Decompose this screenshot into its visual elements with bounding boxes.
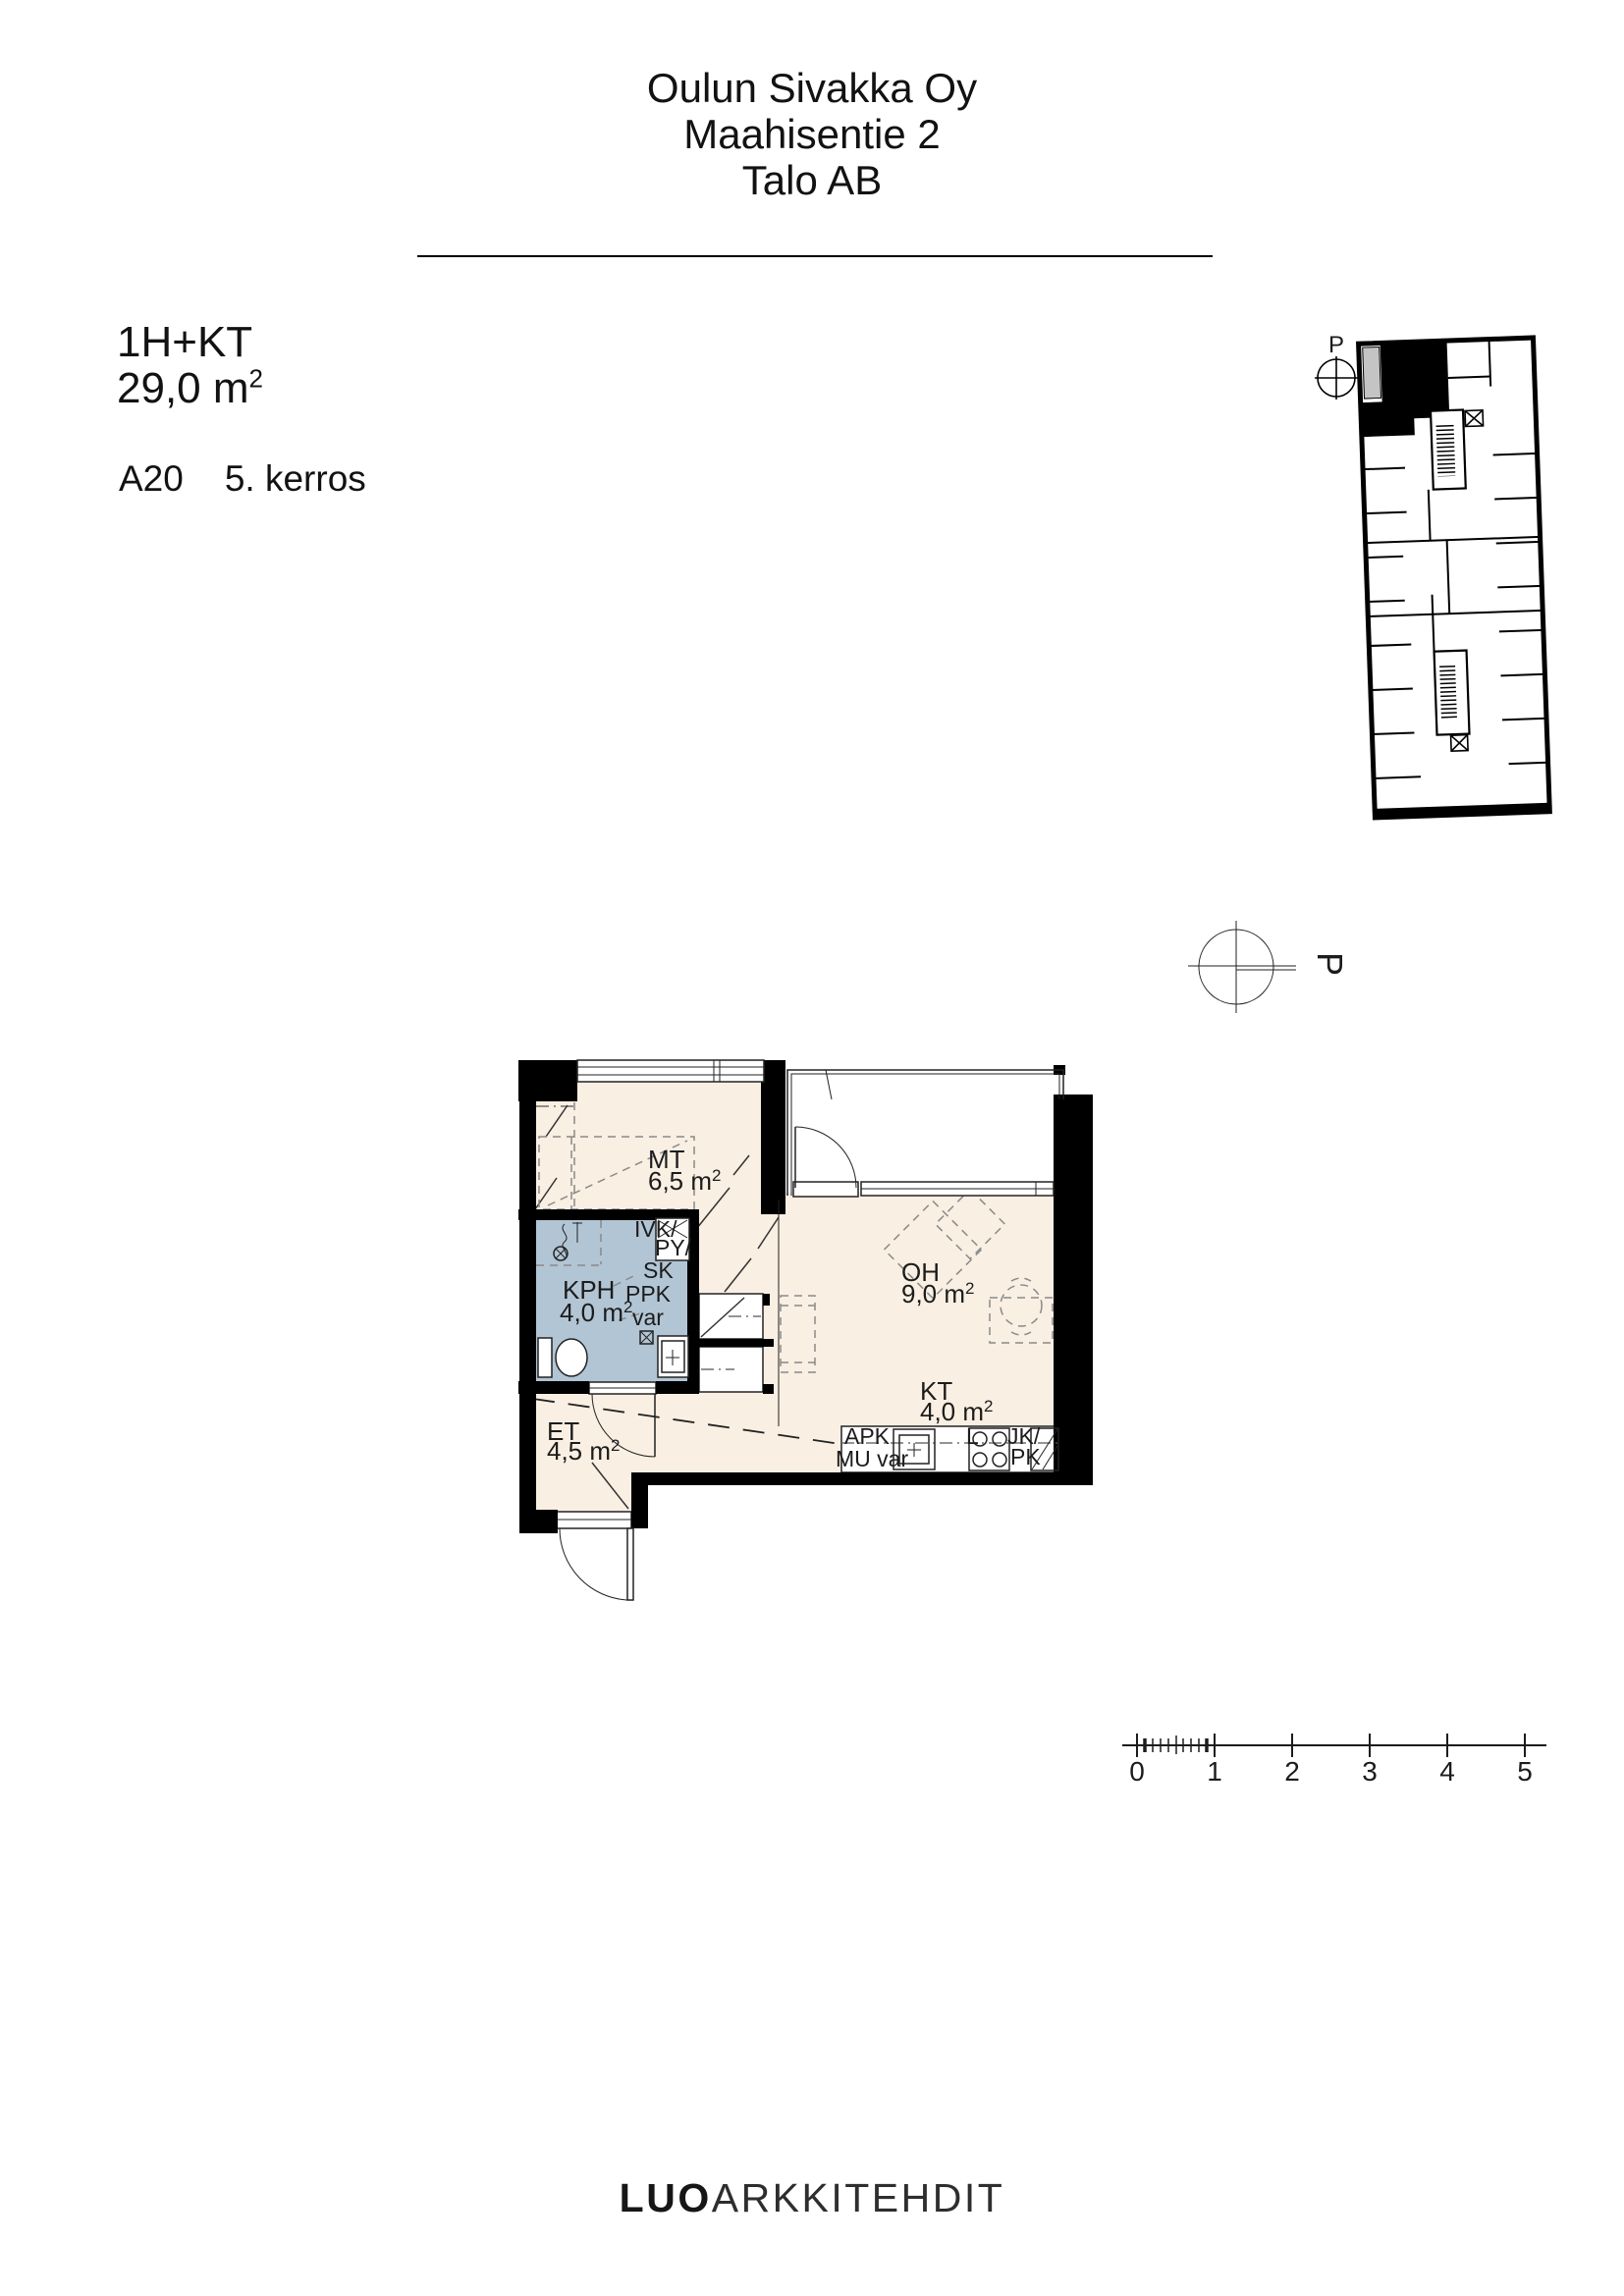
svg-text:5: 5 xyxy=(1517,1756,1533,1787)
room-et-area: 4,5 m2 xyxy=(547,1436,621,1466)
square-sup: 2 xyxy=(249,363,263,393)
document-header: Oulun Sivakka Oy Maahisentie 2 Talo AB xyxy=(0,65,1624,203)
balcony-door-swing xyxy=(795,1127,856,1188)
room-kph-area: 4,0 m2 xyxy=(560,1298,633,1327)
scale-bar: 0 1 2 3 4 5 xyxy=(1100,1718,1561,1796)
key-plan-building xyxy=(1359,338,1550,818)
north-compass-icon: P xyxy=(1178,903,1355,1031)
room-oh-area: 9,0 m2 xyxy=(901,1279,975,1308)
street-address: Maahisentie 2 xyxy=(0,111,1624,157)
scale-numbers: 0 1 2 3 4 5 xyxy=(1129,1756,1533,1787)
toilet xyxy=(538,1338,552,1377)
room-mt-area: 6,5 m2 xyxy=(648,1166,722,1196)
apartment-balcony xyxy=(1363,347,1381,399)
floor-number: 5. kerros xyxy=(225,458,366,499)
label-var: var xyxy=(632,1305,664,1330)
svg-text:2: 2 xyxy=(1284,1756,1300,1787)
label-mu-var: MU var xyxy=(836,1446,908,1471)
header-divider xyxy=(417,255,1213,257)
north-label: P xyxy=(1310,952,1350,976)
label-ppk: PPK xyxy=(625,1281,672,1307)
apartment-area: 29,0 m2 xyxy=(117,364,263,413)
apartment-unit-floor: A205. kerros xyxy=(119,458,366,500)
apartment-floor-plan: MT 6,5 m2 KPH 4,0 m2 OH 9,0 m2 KT 4,0 m2… xyxy=(491,1031,1119,1620)
architect-logo: LUOARKKITEHDIT xyxy=(0,2175,1624,2221)
unit-id: A20 xyxy=(119,458,184,499)
entrance-door xyxy=(627,1528,633,1600)
label-pk: PK xyxy=(1010,1444,1041,1469)
logo-bold: LUO xyxy=(620,2175,712,2220)
stair-core-upper xyxy=(1431,410,1466,490)
svg-text:3: 3 xyxy=(1362,1756,1378,1787)
building-name: Talo AB xyxy=(0,157,1624,203)
svg-text:4: 4 xyxy=(1439,1756,1455,1787)
svg-text:0: 0 xyxy=(1129,1756,1145,1787)
entrance-door-swing xyxy=(560,1528,627,1600)
floor-plan-sheet: Oulun Sivakka Oy Maahisentie 2 Talo AB 1… xyxy=(0,0,1624,2296)
label-l: L xyxy=(966,1423,979,1449)
room-kt-area: 4,0 m2 xyxy=(920,1397,994,1426)
svg-text:1: 1 xyxy=(1207,1756,1222,1787)
stair-core-lower xyxy=(1435,651,1470,735)
logo-light: ARKKITEHDIT xyxy=(712,2175,1005,2220)
label-sk: SK xyxy=(643,1257,674,1283)
company-name: Oulun Sivakka Oy xyxy=(0,65,1624,111)
north-label: P xyxy=(1328,332,1344,358)
balcony-rail xyxy=(787,1070,1063,1196)
key-plan: P xyxy=(1306,319,1561,829)
balcony-door-threshold xyxy=(793,1182,858,1197)
window-mt xyxy=(577,1060,764,1082)
apartment-type: 1H+KT xyxy=(117,318,252,367)
key-plan-north-icon: P xyxy=(1315,332,1358,400)
